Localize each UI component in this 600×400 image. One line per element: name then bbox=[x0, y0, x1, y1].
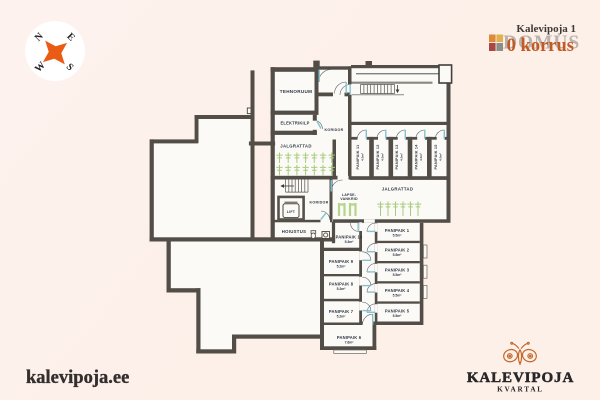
svg-text:5.5m²: 5.5m² bbox=[393, 314, 403, 318]
svg-text:4.0m²: 4.0m² bbox=[400, 153, 404, 161]
svg-text:KALEVIPOJA: KALEVIPOJA bbox=[467, 370, 574, 386]
svg-text:Kalevipoja 1: Kalevipoja 1 bbox=[516, 23, 576, 35]
svg-text:4.0m²: 4.0m² bbox=[360, 153, 364, 161]
svg-text:PANIPAIK 1: PANIPAIK 1 bbox=[385, 228, 410, 233]
svg-text:PANIPAIK 12: PANIPAIK 12 bbox=[376, 144, 380, 169]
svg-text:PANIPAIK 9: PANIPAIK 9 bbox=[329, 259, 354, 264]
svg-text:4.0m²: 4.0m² bbox=[438, 153, 442, 161]
svg-text:TEHNORUUM: TEHNORUUM bbox=[280, 89, 313, 94]
svg-text:PANIPAIK 15: PANIPAIK 15 bbox=[434, 144, 438, 169]
svg-text:PANIPAIK 6: PANIPAIK 6 bbox=[337, 335, 362, 340]
svg-text:PANIPAIK 5: PANIPAIK 5 bbox=[385, 309, 410, 314]
svg-text:0 korrus: 0 korrus bbox=[507, 36, 574, 56]
svg-text:PANIPAIK 14: PANIPAIK 14 bbox=[414, 144, 418, 170]
svg-text:kalevipoja.ee: kalevipoja.ee bbox=[26, 368, 129, 388]
svg-text:PANIPAIK 7: PANIPAIK 7 bbox=[329, 309, 354, 314]
svg-text:PANIPAIK 13: PANIPAIK 13 bbox=[395, 144, 399, 169]
svg-text:PANIPAIK 4: PANIPAIK 4 bbox=[385, 288, 410, 293]
svg-text:PANIPAIK 10: PANIPAIK 10 bbox=[336, 235, 363, 240]
svg-text:5.5m²: 5.5m² bbox=[393, 253, 403, 257]
svg-text:5.5m²: 5.5m² bbox=[393, 273, 403, 277]
svg-text:4.0m²: 4.0m² bbox=[419, 153, 423, 161]
svg-text:JALGRATTAD: JALGRATTAD bbox=[382, 187, 413, 192]
svg-text:5.2m²: 5.2m² bbox=[337, 287, 347, 291]
svg-text:VANKRID: VANKRID bbox=[340, 197, 358, 201]
svg-text:5.2m²: 5.2m² bbox=[337, 265, 347, 269]
svg-text:PANIPAIK 8: PANIPAIK 8 bbox=[329, 282, 354, 287]
svg-text:HOIUSTUS: HOIUSTUS bbox=[282, 229, 307, 234]
svg-text:PANIPAIK 2: PANIPAIK 2 bbox=[385, 248, 410, 253]
svg-text:PANIPAIK 11: PANIPAIK 11 bbox=[356, 145, 360, 170]
svg-text:KVARTAL: KVARTAL bbox=[497, 386, 544, 394]
svg-text:5.5m²: 5.5m² bbox=[393, 293, 403, 297]
svg-text:KORIDOR: KORIDOR bbox=[309, 201, 328, 205]
svg-text:ELEKTRIKILP: ELEKTRIKILP bbox=[280, 121, 309, 126]
svg-text:4.0m²: 4.0m² bbox=[380, 153, 384, 161]
svg-text:KORIDOR: KORIDOR bbox=[324, 128, 343, 132]
svg-text:7.6m²: 7.6m² bbox=[345, 341, 355, 345]
svg-text:LIFT: LIFT bbox=[287, 210, 296, 214]
svg-text:PANIPAIK 3: PANIPAIK 3 bbox=[385, 268, 410, 273]
svg-text:JALGRATTAD: JALGRATTAD bbox=[280, 144, 311, 149]
svg-text:5.5m²: 5.5m² bbox=[393, 234, 403, 238]
svg-text:5.3m²: 5.3m² bbox=[345, 240, 355, 244]
svg-text:5.2m²: 5.2m² bbox=[337, 315, 347, 319]
